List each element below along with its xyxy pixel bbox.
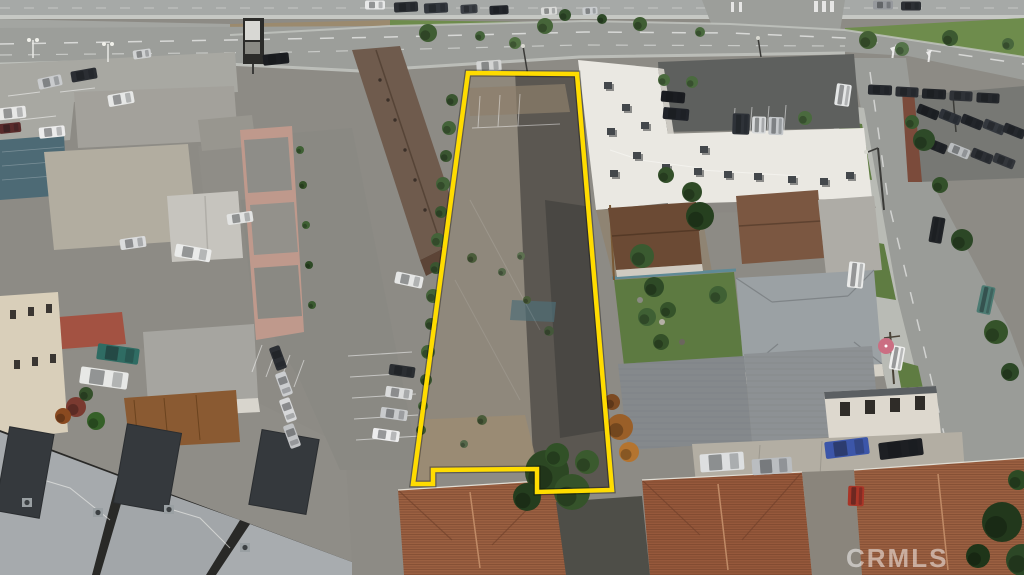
car — [976, 92, 999, 103]
tree — [436, 177, 450, 191]
car — [768, 117, 784, 136]
tree — [442, 121, 456, 135]
tree — [686, 202, 714, 230]
tree — [633, 17, 647, 31]
ac-unit — [93, 508, 103, 517]
tree — [597, 14, 607, 24]
tree — [686, 76, 698, 88]
tree — [658, 74, 670, 86]
car — [460, 4, 477, 14]
tree — [446, 94, 458, 106]
tree — [79, 387, 93, 401]
ac-unit — [164, 505, 174, 514]
tree — [460, 440, 468, 448]
white-commercial-building — [578, 54, 876, 220]
tree — [619, 442, 639, 462]
tree — [1002, 38, 1014, 50]
tree — [302, 221, 310, 229]
car — [365, 1, 385, 10]
tree — [982, 502, 1022, 542]
ac-unit — [22, 498, 32, 507]
tree — [517, 252, 525, 260]
tree — [682, 182, 702, 202]
car — [873, 1, 893, 10]
tree — [55, 408, 71, 424]
car — [732, 113, 750, 135]
tree — [467, 253, 477, 263]
ac-unit — [240, 543, 250, 552]
tree — [951, 229, 973, 251]
tree — [695, 27, 705, 37]
crmls-watermark: CRMLS — [846, 543, 948, 573]
tree — [419, 24, 437, 42]
tree — [942, 30, 958, 46]
tree — [644, 277, 664, 297]
car — [394, 1, 418, 12]
tree — [498, 268, 506, 276]
tree — [523, 296, 531, 304]
tree — [905, 115, 919, 129]
tree — [966, 544, 990, 568]
tree — [475, 31, 485, 41]
car — [848, 486, 865, 507]
tree — [1001, 363, 1019, 381]
tree — [638, 308, 656, 326]
tree — [477, 415, 487, 425]
car — [922, 88, 946, 99]
car — [949, 90, 972, 101]
car — [895, 86, 918, 97]
car — [541, 7, 557, 16]
car — [847, 261, 866, 289]
tree — [658, 167, 674, 183]
far-road-strip — [0, 0, 1024, 19]
car — [699, 451, 744, 472]
tree — [305, 261, 313, 269]
car — [663, 107, 690, 121]
tree — [932, 177, 948, 193]
tree — [630, 244, 654, 268]
car — [868, 85, 892, 96]
tree — [87, 412, 105, 430]
tree — [653, 334, 669, 350]
tree — [984, 320, 1008, 344]
car — [582, 7, 597, 16]
tree — [299, 181, 307, 189]
car — [834, 83, 852, 107]
gray-hip-roof-house — [143, 324, 258, 404]
solar-panel — [249, 430, 319, 515]
paint-patch — [510, 300, 556, 322]
tree — [895, 42, 909, 56]
tree — [296, 146, 304, 154]
tree — [537, 18, 553, 34]
tree — [435, 206, 447, 218]
tree — [308, 301, 316, 309]
car — [661, 90, 686, 103]
tree — [545, 443, 569, 467]
car — [751, 457, 792, 476]
tree — [544, 326, 554, 336]
tree — [660, 302, 676, 318]
tree — [559, 9, 571, 21]
car — [424, 2, 448, 13]
aerial-scene: CRMLS — [0, 0, 1024, 575]
brown-roof-house — [736, 190, 824, 264]
patio-umbrella — [878, 338, 894, 354]
tree — [913, 129, 935, 151]
aerial-property-photo: CRMLS — [0, 0, 1024, 575]
car — [489, 5, 508, 15]
tree — [709, 286, 727, 304]
car — [901, 2, 921, 11]
tree — [440, 150, 452, 162]
tree — [798, 111, 812, 125]
tree — [575, 450, 599, 474]
tree — [509, 37, 521, 49]
car — [752, 116, 767, 133]
tree — [859, 31, 877, 49]
